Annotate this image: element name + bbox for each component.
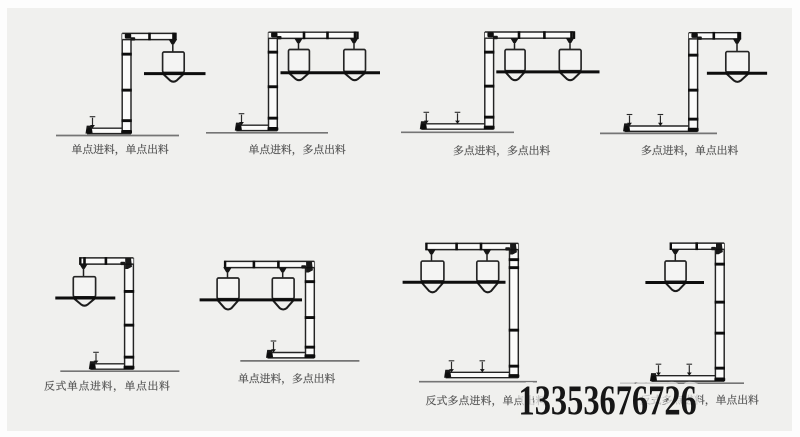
svg-text:13353676726: 13353676726 [519,379,697,425]
